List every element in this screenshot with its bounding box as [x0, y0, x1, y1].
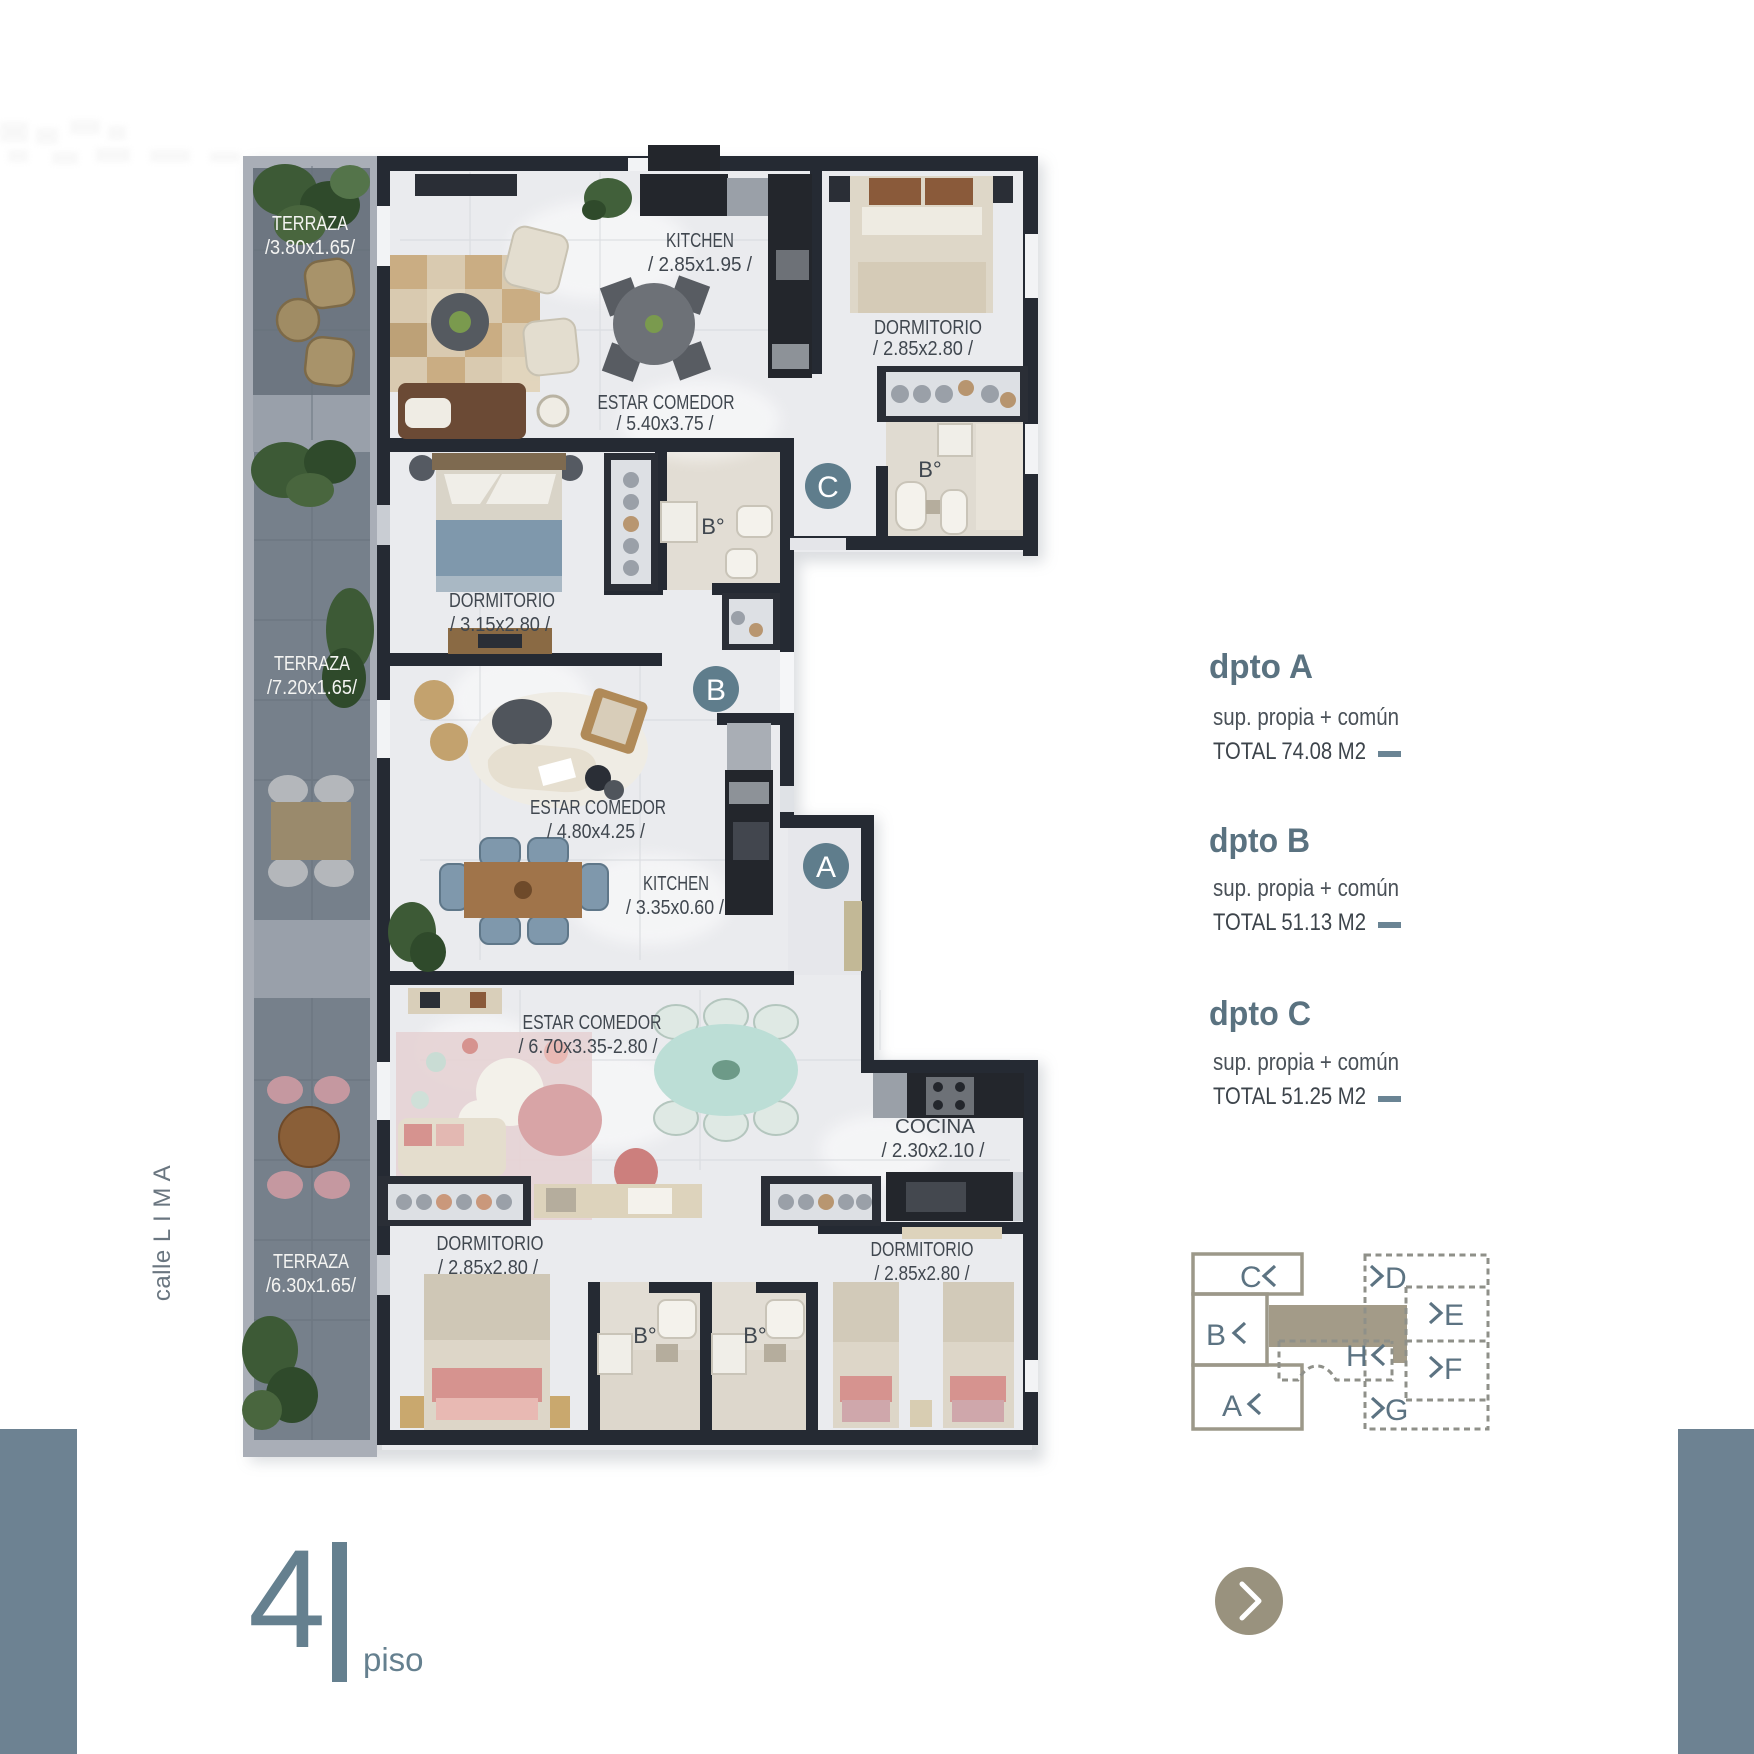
svg-text:sup. propia + común: sup. propia + común	[1213, 1049, 1399, 1076]
svg-text:TERRAZA: TERRAZA	[274, 653, 351, 675]
svg-text:DORMITORIO: DORMITORIO	[449, 590, 555, 612]
svg-text:ESTAR COMEDOR: ESTAR COMEDOR	[523, 1012, 662, 1034]
svg-text:KITCHEN: KITCHEN	[643, 873, 709, 895]
svg-text:sup. propia + común: sup. propia + común	[1213, 875, 1399, 902]
svg-text:G: G	[1385, 1394, 1408, 1427]
svg-text:TOTAL 74.08 M2: TOTAL 74.08 M2	[1213, 738, 1366, 765]
svg-text:/ 2.85x2.80 /: / 2.85x2.80 /	[873, 338, 973, 360]
svg-text:/6.30x1.65/: /6.30x1.65/	[266, 1275, 356, 1297]
svg-text:TERRAZA: TERRAZA	[273, 1251, 350, 1273]
svg-text:/ 2.85x2.80 /: / 2.85x2.80 /	[438, 1257, 538, 1279]
svg-text:C: C	[1240, 1261, 1262, 1294]
svg-text:B°: B°	[918, 457, 941, 482]
svg-text:ESTAR COMEDOR: ESTAR COMEDOR	[598, 392, 735, 414]
svg-text:/3.80x1.65/: /3.80x1.65/	[265, 237, 355, 259]
svg-text:/ 6.70x3.35-2.80 /: / 6.70x3.35-2.80 /	[519, 1036, 658, 1058]
svg-text:DORMITORIO: DORMITORIO	[874, 317, 982, 339]
svg-text:E: E	[1444, 1299, 1464, 1332]
svg-text:F: F	[1444, 1353, 1462, 1386]
svg-text:COCINA: COCINA	[895, 1116, 976, 1138]
svg-text:/ 4.80x4.25 /: / 4.80x4.25 /	[547, 821, 645, 843]
svg-text:dpto B: dpto B	[1209, 822, 1310, 860]
svg-text:sup. propia + común: sup. propia + común	[1213, 704, 1399, 731]
svg-text:B: B	[706, 674, 726, 707]
svg-text:dpto C: dpto C	[1209, 995, 1311, 1033]
svg-text:/ 3.15x2.80 /: / 3.15x2.80 /	[450, 614, 550, 636]
svg-text:TOTAL 51.13 M2: TOTAL 51.13 M2	[1213, 909, 1366, 936]
svg-text:/ 2.85x2.80 /: / 2.85x2.80 /	[875, 1263, 970, 1285]
svg-text:DORMITORIO: DORMITORIO	[871, 1239, 974, 1261]
svg-text:D: D	[1385, 1262, 1407, 1295]
svg-text:B°: B°	[743, 1323, 766, 1348]
svg-text:DORMITORIO: DORMITORIO	[437, 1233, 544, 1255]
svg-text:dpto A: dpto A	[1209, 648, 1313, 686]
svg-text:/ 5.40x3.75 /: / 5.40x3.75 /	[617, 413, 714, 435]
svg-text:B°: B°	[633, 1323, 656, 1348]
svg-text:B: B	[1206, 1319, 1226, 1352]
svg-text:4: 4	[248, 1520, 326, 1677]
svg-text:/ 2.30x2.10 /: / 2.30x2.10 /	[882, 1140, 985, 1162]
svg-text:H: H	[1346, 1340, 1368, 1373]
svg-text:ESTAR COMEDOR: ESTAR COMEDOR	[530, 797, 666, 819]
svg-text:/ 2.85x1.95 /: / 2.85x1.95 /	[648, 254, 752, 276]
svg-text:TERRAZA: TERRAZA	[272, 213, 349, 235]
svg-text:C: C	[817, 471, 839, 504]
svg-text:piso: piso	[363, 1641, 424, 1678]
svg-text:calle L I M A: calle L I M A	[149, 1165, 176, 1301]
svg-text:A: A	[816, 851, 836, 884]
svg-text:B°: B°	[701, 514, 724, 539]
svg-text:TOTAL 51.25 M2: TOTAL 51.25 M2	[1213, 1083, 1366, 1110]
svg-text:/7.20x1.65/: /7.20x1.65/	[267, 677, 357, 699]
svg-text:/ 3.35x0.60 /: / 3.35x0.60 /	[626, 897, 724, 919]
svg-text:A: A	[1222, 1390, 1242, 1423]
svg-text:KITCHEN: KITCHEN	[666, 230, 734, 252]
